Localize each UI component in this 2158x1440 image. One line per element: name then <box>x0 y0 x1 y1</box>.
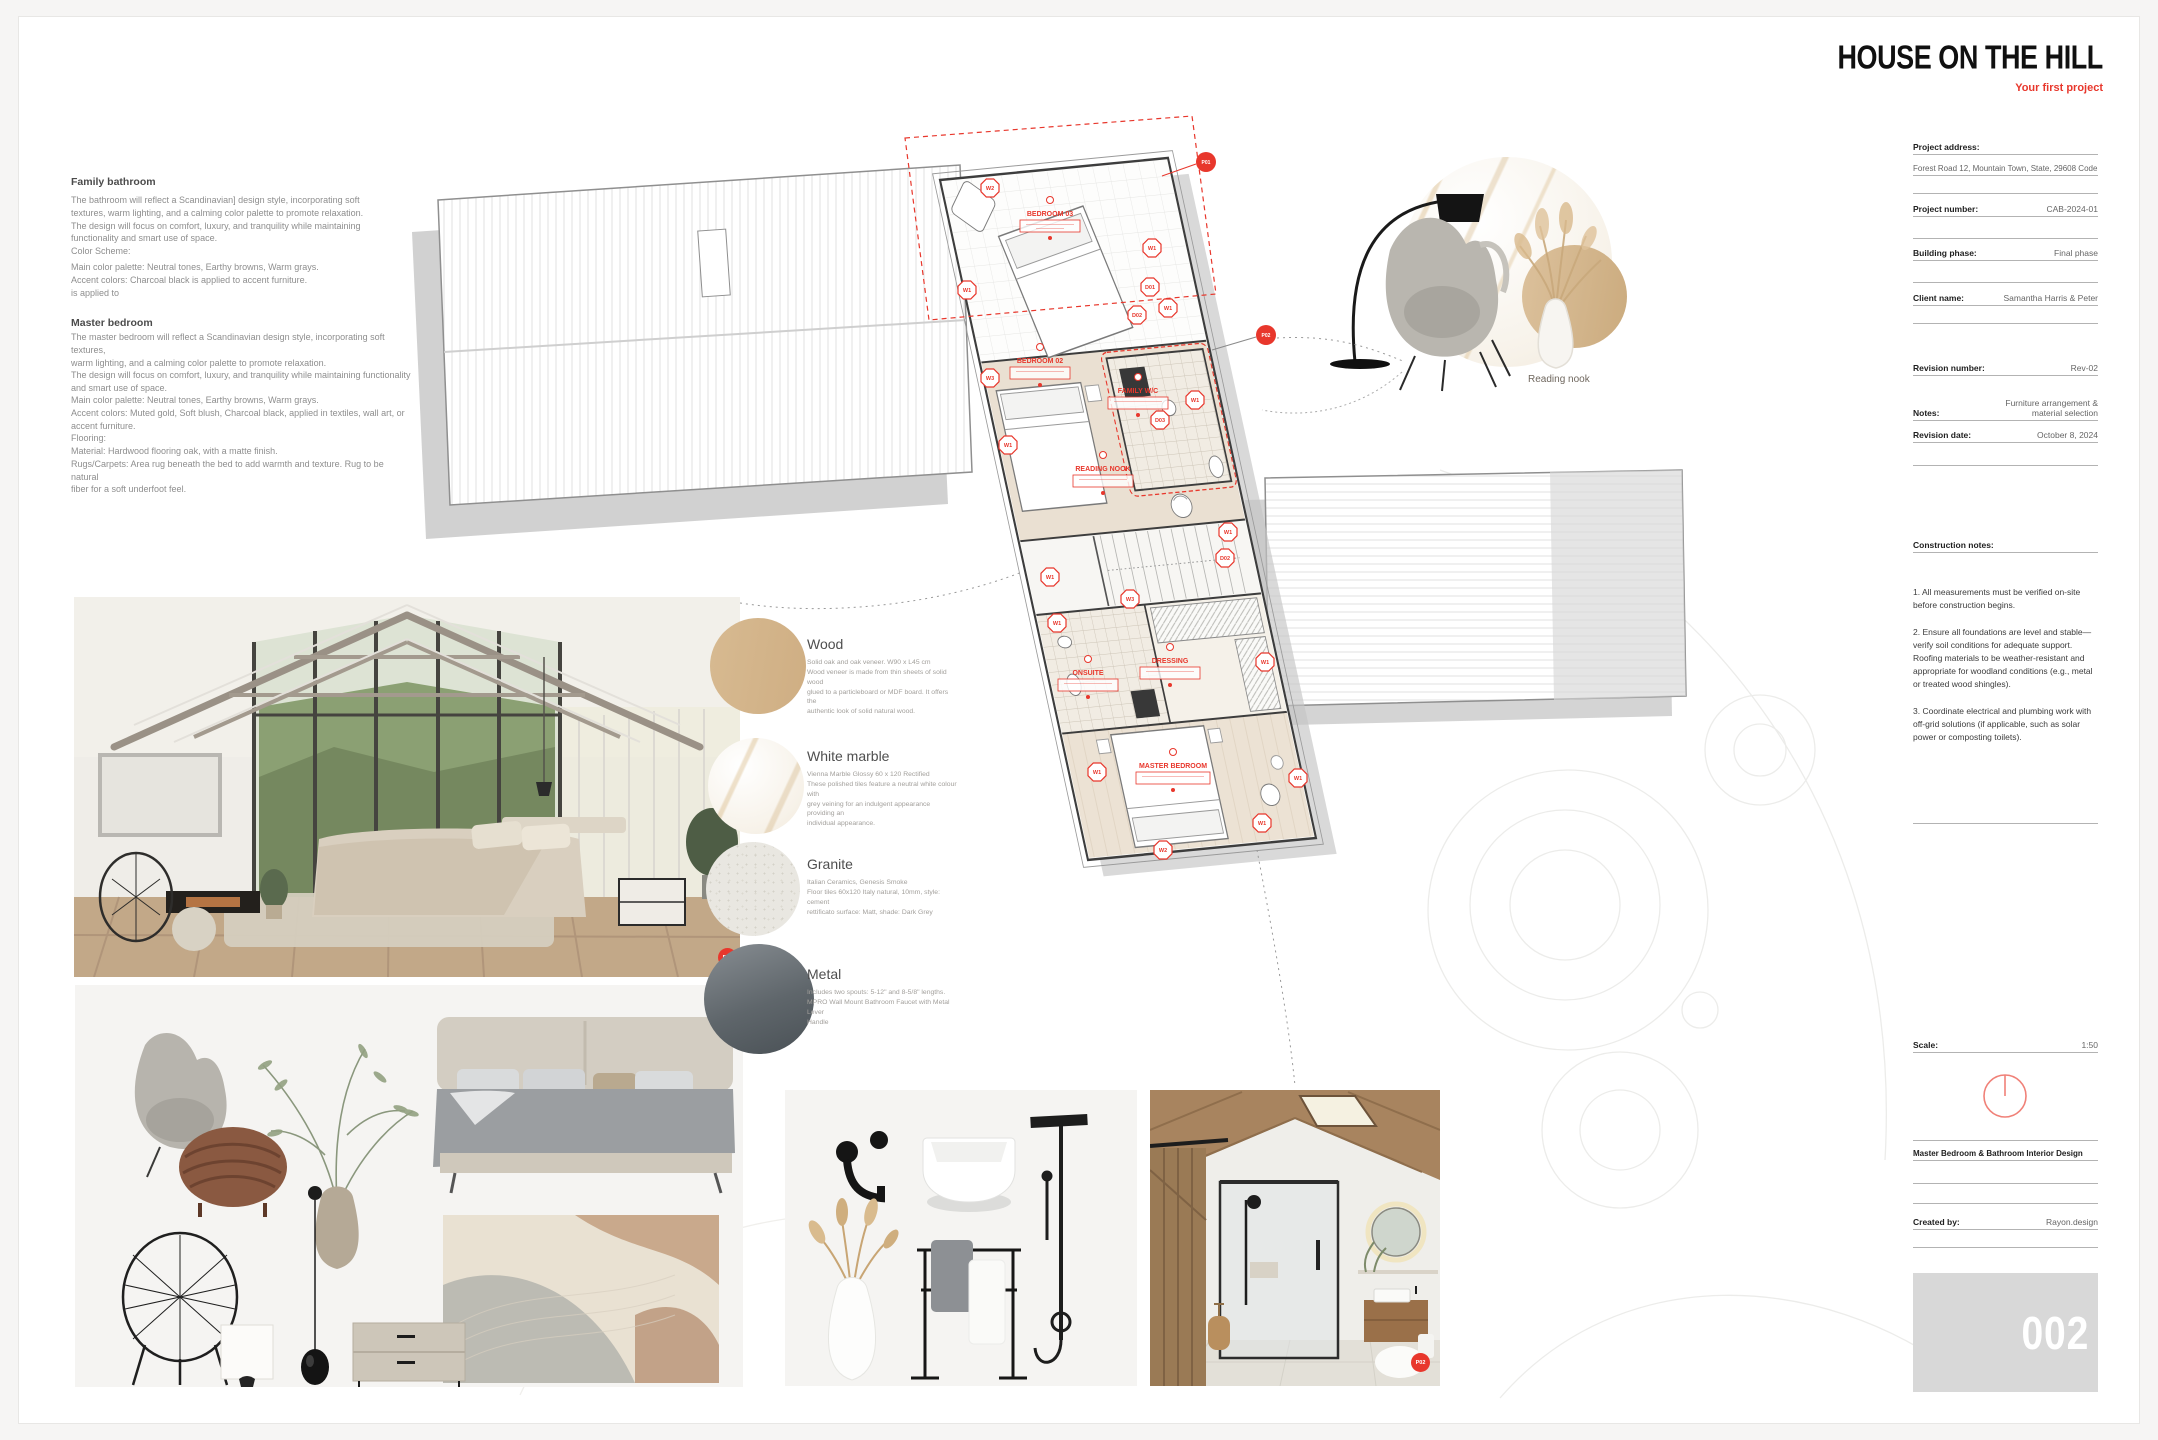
sheet-number-box: 002 <box>1913 1273 2098 1392</box>
page-title: HOUSE ON THE HILL <box>1838 40 2103 77</box>
field-divider <box>1913 1229 2098 1248</box>
field-divider <box>1913 447 2098 466</box>
area-rug-image <box>443 1215 719 1383</box>
photo-marker-p02: P02 <box>1411 1353 1430 1372</box>
master-bedroom-text-2: Main color palette: Neutral tones, Earth… <box>71 394 411 496</box>
field-divider <box>1913 220 2098 239</box>
field-notes: Notes:Furniture arrangement & material s… <box>1913 380 2098 421</box>
field-building-phase: Building phase:Final phase <box>1913 240 2098 261</box>
field-project-address-label: Project address: <box>1913 134 2098 155</box>
project-subtitle: Your first project <box>1808 82 2103 94</box>
bed-image <box>433 1017 735 1193</box>
field-divider <box>1913 175 2098 194</box>
material-name: Wood <box>807 636 843 652</box>
material-name: White marble <box>807 748 889 764</box>
sheet-number: 002 <box>2022 1306 2098 1360</box>
family-bathroom-text-1: The bathroom will reflect a Scandinavian… <box>71 194 411 258</box>
master-bedroom-heading: Master bedroom <box>71 317 153 329</box>
pampas-vase-image <box>805 1197 901 1380</box>
material-desc: Italian Ceramics, Genesis Smoke Floor ti… <box>807 878 957 917</box>
field-sheet-title: Master Bedroom & Bathroom Interior Desig… <box>1913 1143 2098 1161</box>
project-brand: HOUSE ON THE HILL Your first project <box>1808 40 2103 94</box>
material-desc: Vienna Marble Glossy 60 x 120 Rectified … <box>807 770 957 829</box>
family-bathroom-heading: Family bathroom <box>71 176 156 188</box>
wall-faucet-image <box>836 1131 888 1198</box>
field-revision-date: Revision date:October 8, 2024 <box>1913 422 2098 443</box>
granite-swatch <box>706 842 800 936</box>
round-mirror <box>1372 1208 1420 1256</box>
reading-nook-caption: Reading nook <box>1528 374 1590 385</box>
field-divider <box>1913 264 2098 283</box>
field-revision-number: Revision number:Rev-02 <box>1913 355 2098 376</box>
table-lamp-image <box>221 1325 273 1387</box>
bathroom-fixtures-collage <box>785 1090 1137 1386</box>
shower-system-image <box>1031 1115 1087 1363</box>
nightstand-image <box>353 1323 465 1387</box>
furniture-collage <box>75 985 743 1387</box>
material-name: Granite <box>807 856 853 872</box>
design-sheet: HOUSE ON THE HILL Your first project Fam… <box>0 0 2158 1440</box>
field-divider <box>1913 1122 2098 1141</box>
master-bedroom-photo <box>74 597 740 977</box>
field-client-name: Client name:Samantha Harris & Peter <box>1913 285 2098 306</box>
field-construction-notes-label: Construction notes: <box>1913 532 2098 553</box>
towel-rack-image <box>911 1240 1027 1378</box>
north-indicator-icon <box>1975 1066 2035 1126</box>
master-bedroom-text-1: The master bedroom will reflect a Scandi… <box>71 331 411 395</box>
field-divider <box>1913 1165 2098 1184</box>
wire-chair-image <box>123 1233 237 1385</box>
toilet-image <box>923 1138 1015 1212</box>
family-bathroom-text-2: Main color palette: Neutral tones, Earth… <box>71 261 411 299</box>
field-created-by: Created by:Rayon.design <box>1913 1209 2098 1230</box>
shower-enclosure <box>1220 1182 1338 1358</box>
material-desc: Includes two spouts: 5-12" and 8-5/8" le… <box>807 988 957 1027</box>
field-divider <box>1913 1185 2098 1204</box>
bathroom-photo <box>1150 1090 1440 1386</box>
construction-notes-text: 1. All measurements must be verified on-… <box>1913 586 2098 744</box>
material-desc: Solid oak and oak veneer. W90 x L45 cm W… <box>807 658 957 717</box>
metal-swatch <box>704 944 814 1054</box>
field-scale: Scale:1:50 <box>1913 1032 2098 1053</box>
wood-swatch <box>710 618 806 714</box>
field-divider <box>1913 305 2098 324</box>
wood-backdrop-circle <box>1522 245 1627 348</box>
marble-swatch <box>708 738 804 834</box>
field-project-number: Project number:CAB-2024-01 <box>1913 196 2098 217</box>
field-project-address-value: Forest Road 12, Mountain Town, State, 29… <box>1913 155 2098 176</box>
ottoman-image <box>179 1127 287 1217</box>
field-divider <box>1913 805 2098 824</box>
material-name: Metal <box>807 966 841 982</box>
